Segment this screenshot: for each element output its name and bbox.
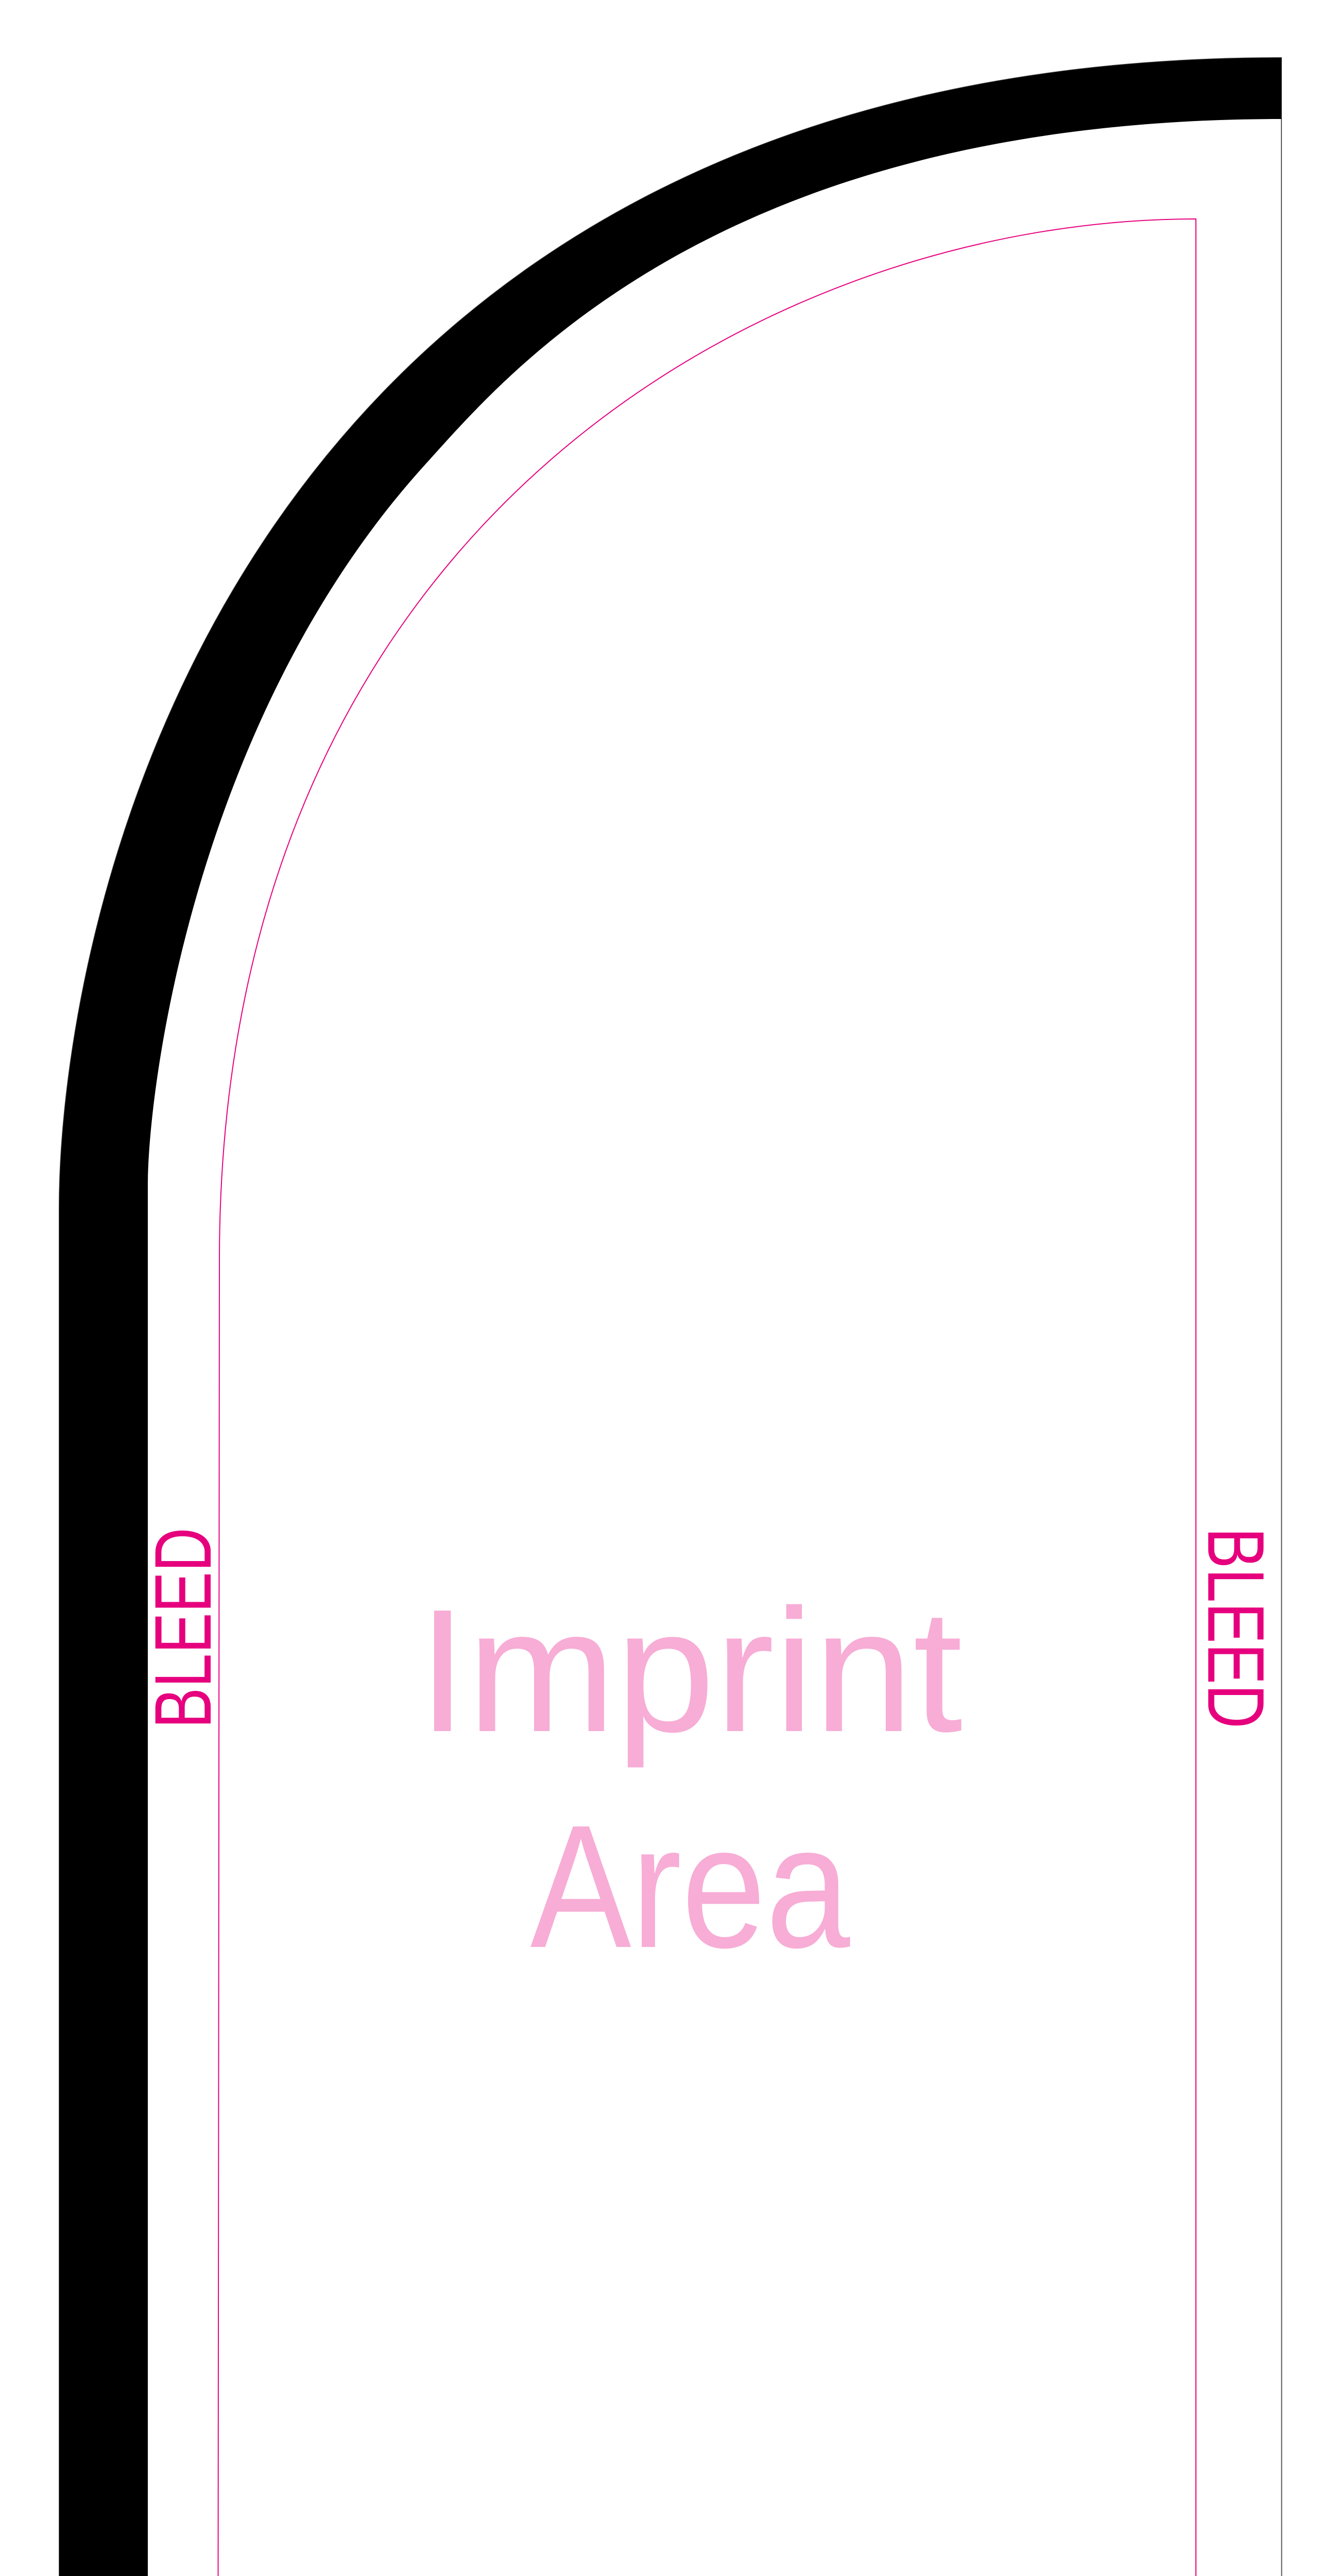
- svg-text:BLEED: BLEED: [139, 1528, 228, 1728]
- svg-text:Imprint: Imprint: [418, 1573, 963, 1769]
- svg-text:Area: Area: [530, 1789, 851, 1985]
- svg-text:BLEED: BLEED: [1191, 1528, 1280, 1728]
